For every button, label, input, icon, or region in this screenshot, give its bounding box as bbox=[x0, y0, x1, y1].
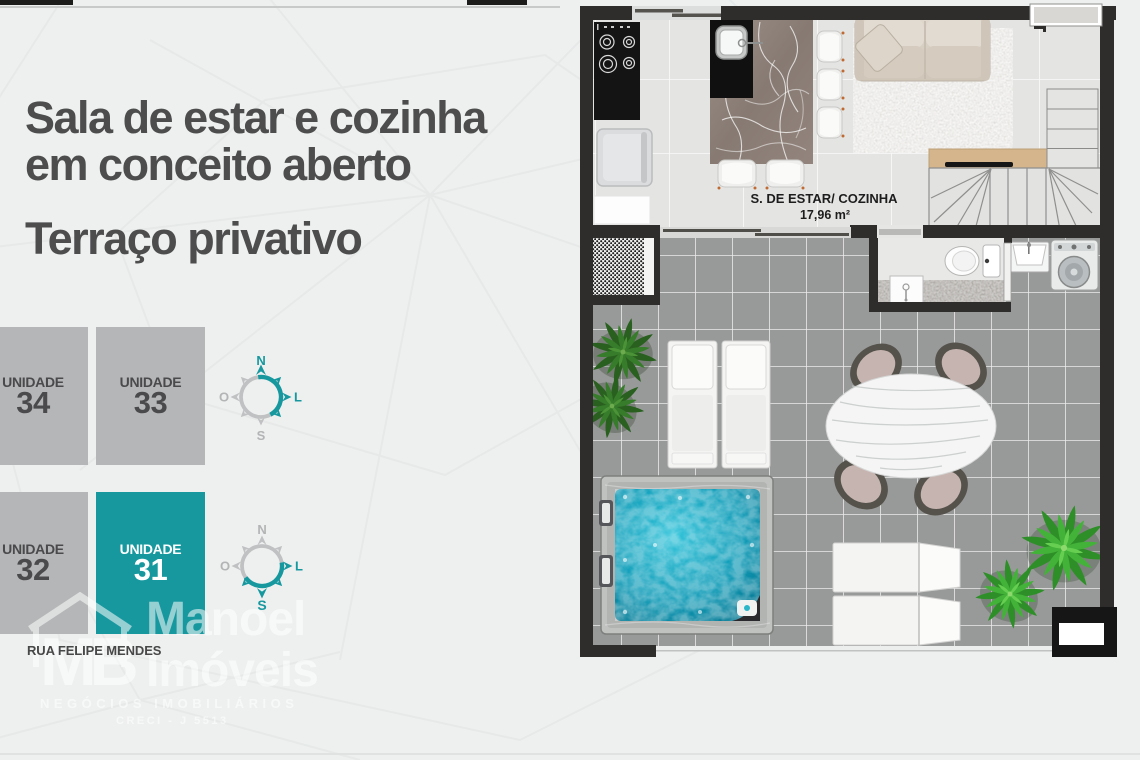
svg-text:17,96 m²: 17,96 m² bbox=[800, 208, 850, 222]
svg-text:S. DE ESTAR/ COZINHA: S. DE ESTAR/ COZINHA bbox=[750, 191, 898, 206]
